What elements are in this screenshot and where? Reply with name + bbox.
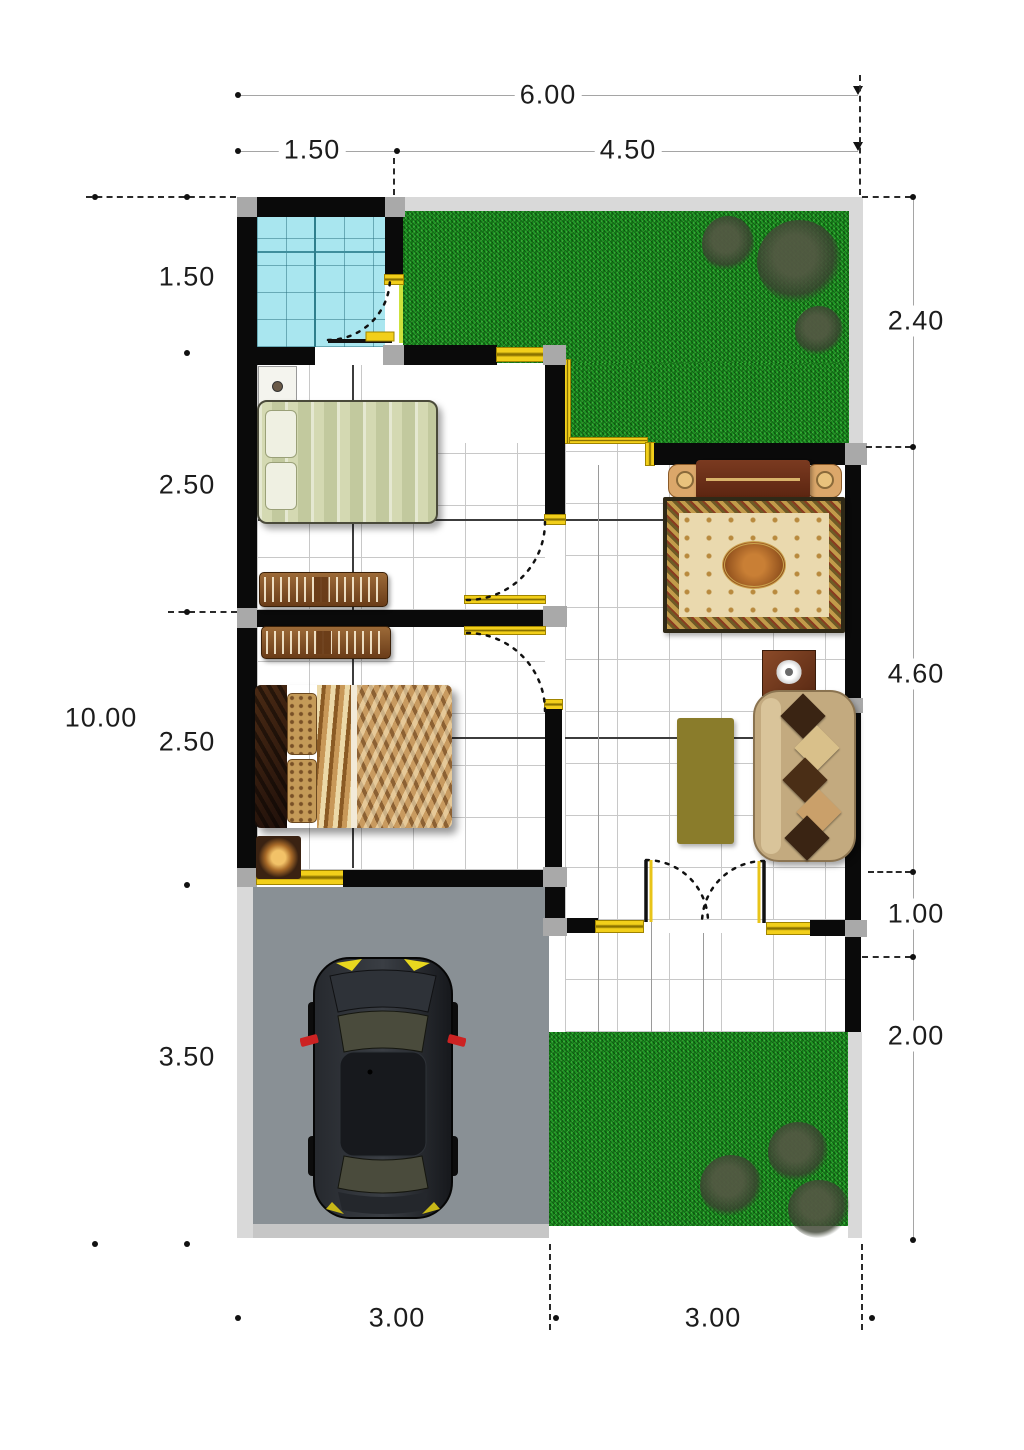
dim-top-seg2: 4.50: [595, 135, 662, 166]
tree-canopy: [768, 1122, 828, 1182]
dim-left-total: 10.00: [60, 703, 143, 734]
garden-right-border: [849, 211, 863, 443]
column: [383, 345, 404, 365]
carport-left-border: [237, 887, 253, 1238]
terrace-floor: [565, 933, 845, 1032]
dim-left-seg1: 1.50: [154, 262, 221, 293]
carport-bottom-border: [253, 1224, 549, 1238]
door-frame: [545, 700, 562, 709]
dimension-tick: [910, 1237, 916, 1243]
window-marker: [497, 348, 543, 361]
dimension-tick: [235, 92, 241, 98]
dimension-tick: [184, 609, 190, 615]
dimension-tick: [910, 444, 916, 450]
area-rug: [663, 497, 845, 633]
garden-top-border: [403, 197, 863, 211]
wall-segment: [237, 628, 257, 870]
dim-left-seg2: 2.50: [154, 470, 221, 501]
lawn-back-lower: [570, 363, 849, 443]
column: [237, 868, 257, 887]
tile-line: [703, 933, 704, 1032]
blanket: [357, 685, 452, 828]
dimension-tick: [184, 1241, 190, 1247]
dimension-tick: [869, 1315, 875, 1321]
dimension-tick: [235, 148, 241, 154]
dimension-tick: [553, 1315, 559, 1321]
column: [543, 606, 567, 627]
extension-line: [86, 196, 236, 198]
extension-line: [168, 611, 237, 613]
dim-left-seg4: 3.50: [154, 1042, 221, 1073]
extension-line: [862, 956, 911, 958]
pillow: [287, 759, 317, 823]
dim-right-seg2: 4.60: [883, 659, 950, 690]
dim-bottom-seg1: 3.00: [364, 1303, 431, 1334]
column: [543, 867, 567, 887]
double-bed: [255, 685, 452, 828]
blanket-fold: [317, 685, 351, 828]
dimension-arrow: [853, 86, 863, 95]
wall-segment: [845, 937, 861, 1032]
tree-canopy: [700, 1155, 762, 1217]
dimension-tick: [910, 954, 916, 960]
window-strip: [570, 438, 647, 443]
wall-segment: [237, 347, 315, 365]
dimension-tick: [184, 194, 190, 200]
single-bed: [257, 400, 438, 524]
car: [300, 950, 466, 1226]
tree-canopy: [757, 220, 841, 304]
nightstand-lamp: [256, 836, 301, 879]
tile-line: [598, 465, 599, 1032]
door-frame: [767, 923, 810, 934]
column: [543, 918, 567, 936]
door-frame: [646, 443, 654, 465]
wall-segment: [257, 610, 545, 627]
extension-line: [862, 196, 911, 198]
dimension-tick: [910, 869, 916, 875]
column: [385, 197, 405, 217]
dim-top-total: 6.00: [515, 80, 582, 111]
wall-segment: [810, 920, 845, 936]
wall-segment: [385, 217, 403, 275]
dim-top-seg1: 1.50: [279, 135, 346, 166]
wardrobe-rack: [259, 572, 388, 607]
wall-segment: [237, 217, 257, 347]
dimension-tick: [235, 1315, 241, 1321]
wall-segment: [545, 709, 562, 867]
extension-line: [866, 446, 911, 448]
door-frame: [596, 921, 643, 932]
tree-canopy: [702, 216, 754, 272]
tree-canopy: [788, 1180, 850, 1238]
wall-segment: [404, 345, 497, 365]
dim-right-seg3: 1.00: [883, 899, 950, 930]
wall-segment: [237, 365, 257, 610]
door-frame: [545, 515, 565, 524]
column: [237, 608, 257, 628]
wall-segment: [545, 887, 565, 920]
sofa: [753, 690, 856, 862]
pillow: [287, 693, 317, 755]
extension-line: [868, 871, 911, 873]
floor-plan: 6.00 1.50 4.50 1.50 2.50 10.00 2.50 3.50…: [0, 0, 1024, 1450]
window-marker: [385, 275, 403, 284]
dimension-tick: [394, 148, 400, 154]
extension-line: [393, 158, 395, 195]
column: [845, 443, 867, 465]
window-strip: [565, 360, 570, 443]
dimension-tick: [92, 1241, 98, 1247]
extension-line: [861, 1244, 863, 1330]
wall-segment: [255, 197, 387, 217]
dim-right-seg4: 2.00: [883, 1021, 950, 1052]
column: [237, 197, 257, 217]
tree-canopy: [795, 306, 843, 356]
bathroom-floor: [257, 217, 385, 347]
dim-right-seg1: 2.40: [883, 306, 950, 337]
dimension-tick: [910, 194, 916, 200]
dimension-line: [913, 197, 914, 1240]
lawn-front-right-border: [848, 1032, 862, 1238]
dimension-arrow: [853, 142, 863, 151]
extension-line: [859, 75, 861, 195]
dimension-tick: [184, 350, 190, 356]
extension-line: [549, 1244, 551, 1330]
wall-segment: [343, 870, 545, 887]
dimension-tick: [184, 882, 190, 888]
column: [543, 345, 566, 365]
wall-segment: [845, 465, 861, 698]
coffee-table: [677, 718, 734, 844]
lamp: [272, 381, 283, 392]
wardrobe-rack: [261, 626, 391, 659]
wall-segment: [545, 365, 565, 515]
column: [845, 920, 867, 937]
tile-line: [651, 887, 652, 1032]
wall-segment: [567, 918, 598, 933]
dim-left-seg3: 2.50: [154, 727, 221, 758]
door-leaf: [465, 596, 545, 603]
headboard: [255, 685, 287, 828]
dimension-tick: [92, 194, 98, 200]
door-leaf: [465, 627, 545, 634]
dim-bottom-seg2: 3.00: [680, 1303, 747, 1334]
